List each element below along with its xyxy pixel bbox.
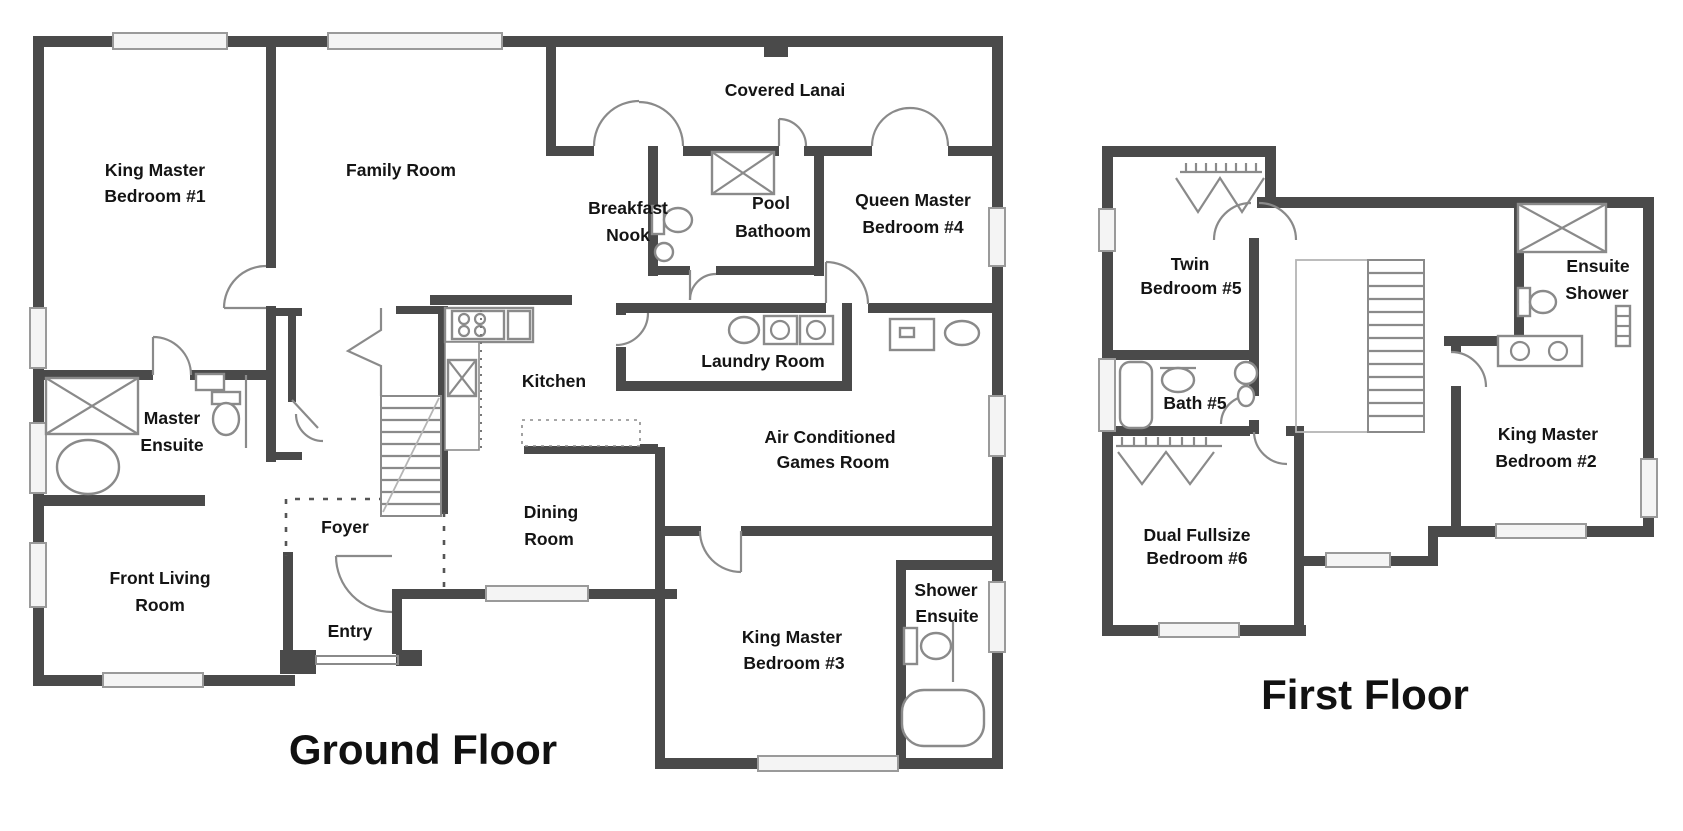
- first-floor-staircase-icon: [1296, 260, 1424, 432]
- shower-icon: [1518, 204, 1606, 252]
- label-king-master-bedroom-1-line2: Bedroom #1: [104, 186, 205, 206]
- stove-icon: [452, 311, 530, 339]
- label-king-master-bedroom-2: King Master: [1498, 424, 1598, 444]
- label-dining-room-line2: Room: [524, 529, 574, 549]
- linen-closet-icon: [1616, 306, 1630, 346]
- label-king-master-bedroom-3: King Master: [742, 627, 842, 647]
- bedroom-6-closet-icon: [1116, 437, 1222, 484]
- toilet-icon: [1518, 288, 1556, 316]
- laundry-sink-icon: [729, 317, 759, 343]
- label-dual-fullsize-bedroom-6: Dual Fullsize: [1144, 525, 1251, 545]
- bathtub-icon: [1120, 362, 1152, 428]
- sink-icon: [1160, 368, 1196, 392]
- label-queen-master-bedroom-4-line2: Bedroom #4: [862, 217, 963, 237]
- dryer-icon: [800, 316, 833, 344]
- ground-floor: King Master Bedroom #1 Family Room Cover…: [30, 33, 1005, 773]
- label-entry: Entry: [328, 621, 373, 641]
- label-shower-ensuite: Shower: [914, 580, 977, 600]
- ground-floor-windows: [30, 33, 1005, 771]
- label-ensuite-shower-line2: Shower: [1565, 283, 1628, 303]
- shower-icon: [712, 152, 774, 194]
- water-heater-icon: [945, 321, 979, 345]
- bathtub-icon: [57, 440, 119, 494]
- staircase-icon: [381, 396, 441, 516]
- floor-plan-page: King Master Bedroom #1 Family Room Cover…: [0, 0, 1683, 831]
- label-laundry-room: Laundry Room: [701, 351, 824, 371]
- label-pool-bathroom-line2: Bathoom: [735, 221, 811, 241]
- label-dining-room: Dining: [524, 502, 578, 522]
- label-twin-bedroom-5-line2: Bedroom #5: [1140, 278, 1241, 298]
- sink-icon: [655, 243, 673, 261]
- label-twin-bedroom-5: Twin: [1171, 254, 1210, 274]
- master-ensuite-fixtures: [46, 374, 246, 494]
- ground-floor-walls: [33, 36, 1003, 769]
- toilet-icon: [212, 392, 240, 435]
- label-games-room-line2: Games Room: [777, 452, 890, 472]
- label-master-ensuite: Master: [144, 408, 201, 428]
- kitchen-sink-icon: [448, 360, 476, 396]
- label-king-master-bedroom-2-line2: Bedroom #2: [1495, 451, 1596, 471]
- kitchen-island-counter: [522, 420, 640, 446]
- toilet-icon: [904, 628, 951, 664]
- ground-floor-title: Ground Floor: [289, 726, 557, 773]
- label-breakfast-nook: Breakfast: [588, 198, 668, 218]
- label-shower-ensuite-line2: Ensuite: [915, 606, 978, 626]
- label-king-master-bedroom-3-line2: Bedroom #3: [743, 653, 844, 673]
- label-front-living-room-line2: Room: [135, 595, 185, 615]
- label-front-living-room: Front Living: [109, 568, 210, 588]
- front-door: [316, 656, 398, 664]
- label-breakfast-nook-line2: Nook: [606, 225, 650, 245]
- washer-icon: [764, 316, 797, 344]
- floor-plan: King Master Bedroom #1 Family Room Cover…: [0, 0, 1683, 831]
- label-covered-lanai: Covered Lanai: [725, 80, 846, 100]
- shower-icon: [46, 378, 138, 434]
- label-dual-fullsize-bedroom-6-line2: Bedroom #6: [1146, 548, 1247, 568]
- shower-ensuite-fixtures: [902, 622, 984, 746]
- label-king-master-bedroom-1: King Master: [105, 160, 205, 180]
- label-family-room: Family Room: [346, 160, 456, 180]
- games-room-fixtures: [890, 319, 979, 350]
- label-queen-master-bedroom-4: Queen Master: [855, 190, 971, 210]
- vanity-sink-icon: [1498, 336, 1582, 366]
- label-bath-5: Bath #5: [1163, 393, 1226, 413]
- sink-icon: [196, 374, 224, 390]
- bathtub-icon: [902, 690, 984, 746]
- label-games-room: Air Conditioned: [764, 427, 895, 447]
- laundry-fixtures: [729, 316, 833, 344]
- first-floor-title: First Floor: [1261, 671, 1469, 718]
- first-floor: Twin Bedroom #5 Bath #5 Ensuite Shower K…: [1099, 146, 1657, 718]
- twin-bedroom-closet-icon: [1176, 163, 1264, 212]
- label-master-ensuite-line2: Ensuite: [140, 435, 203, 455]
- label-ensuite-shower: Ensuite: [1566, 256, 1629, 276]
- utility-unit-icon: [890, 319, 934, 350]
- label-foyer: Foyer: [321, 517, 369, 537]
- label-pool-bathroom: Pool: [752, 193, 790, 213]
- label-kitchen: Kitchen: [522, 371, 586, 391]
